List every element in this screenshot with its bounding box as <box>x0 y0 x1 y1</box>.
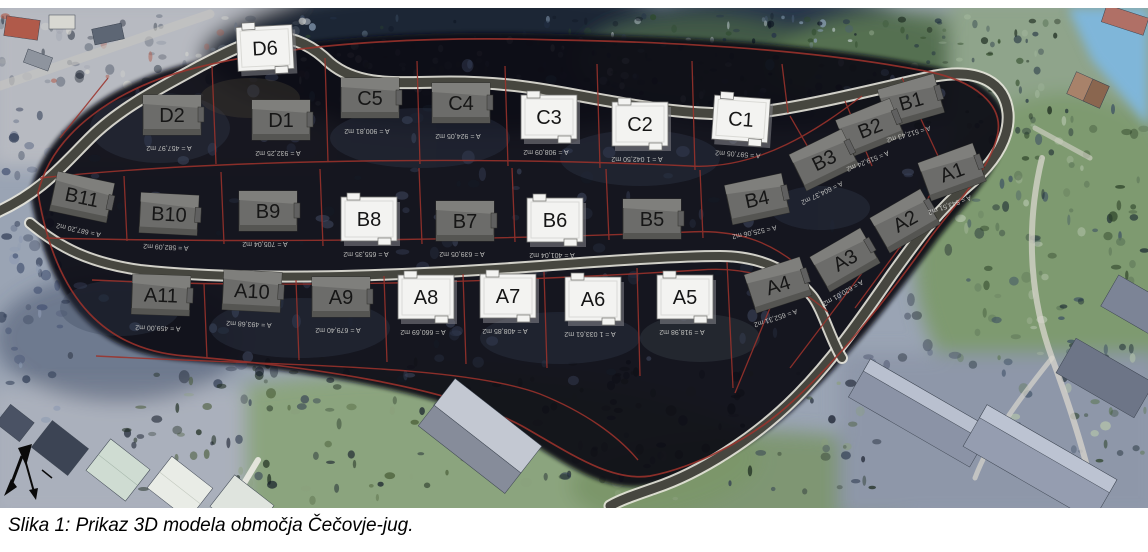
parcel-house-c5: C5 <box>341 78 402 118</box>
parcel-house-b6: B6 <box>527 194 586 247</box>
parcel-house-a9: A9 <box>312 277 373 317</box>
parcel-label-d2: D2 <box>159 105 185 127</box>
parcel-label-a7: A7 <box>496 286 520 308</box>
parcel-house-a10: A10 <box>222 270 285 313</box>
parcel-house-c4: C4 <box>432 83 493 123</box>
parcel-area-text-b9: A = 705,04 m2 <box>242 240 287 247</box>
parcel-area-text-a8: A = 660,69 m2 <box>400 328 445 335</box>
parcel-label-b7: B7 <box>453 211 477 233</box>
parcel-label-b5: B5 <box>640 209 664 231</box>
parcel-area-text-c5: A = 900,81 m2 <box>344 127 389 134</box>
figure-caption: Slika 1: Prikaz 3D modela območja Čečovj… <box>0 508 1148 538</box>
parcel-house-a7: A7 <box>480 270 539 323</box>
parcel-area-text-b7: A = 639,05 m2 <box>439 250 484 257</box>
parcel-house-b10: B10 <box>139 193 202 236</box>
parcel-label-c4: C4 <box>448 93 474 115</box>
parcel-house-d6: D6 <box>236 20 298 76</box>
parcel-label-d1: D1 <box>268 110 294 132</box>
parcel-house-a5: A5 <box>657 271 716 324</box>
parcel-house-b8: B8 <box>341 193 400 246</box>
parcel-area-text-c2: A = 1 042,50 m2 <box>611 155 662 162</box>
parcel-area-text-c4: A = 924,05 m2 <box>435 132 480 139</box>
parcel-label-b10: B10 <box>151 203 188 227</box>
parcel-house-a11: A11 <box>131 274 193 316</box>
parcel-area-text-b6: A = 401,04 m2 <box>529 251 574 258</box>
parcel-label-c5: C5 <box>357 88 383 110</box>
parcel-house-d2: D2 <box>143 95 204 135</box>
parcel-house-d1: D1 <box>252 100 313 140</box>
figure-3d-model: D6D2D1C5C4C3C2C1B1B2B3A1A2B11B10B9B8B7B6… <box>0 8 1148 538</box>
parcel-area-text-a7: A = 408,85 m2 <box>482 327 527 334</box>
parcel-label-a11: A11 <box>144 284 179 307</box>
parcel-label-c2: C2 <box>627 114 653 136</box>
parcel-label-c3: C3 <box>536 107 562 129</box>
aerial-photo: D6D2D1C5C4C3C2C1B1B2B3A1A2B11B10B9B8B7B6… <box>0 8 1148 508</box>
parcel-area-text-a5: A = 918,98 m2 <box>659 328 704 335</box>
parcel-house-a8: A8 <box>398 271 457 324</box>
parcel-area-text-d2: A = 457,97 m2 <box>146 144 191 151</box>
parcel-label-b6: B6 <box>543 210 567 232</box>
parcel-area-text-c3: A = 908,09 m2 <box>523 148 568 155</box>
parcel-label-a9: A9 <box>329 287 353 309</box>
parcel-label-c1: C1 <box>727 108 754 132</box>
parcel-house-c3: C3 <box>521 91 580 144</box>
parcel-label-b9: B9 <box>256 201 280 223</box>
parcel-house-c1: C1 <box>711 91 774 148</box>
parcel-area-text-d1: A = 932,25 m2 <box>255 149 300 156</box>
parcel-house-b7: B7 <box>436 201 497 241</box>
parcel-area-text-b8: A = 655,35 m2 <box>343 250 388 257</box>
parcel-label-a8: A8 <box>414 287 438 309</box>
parcel-label-a10: A10 <box>234 280 271 304</box>
parcel-house-c2: C2 <box>612 98 671 151</box>
parcel-area-text-a6: A = 1 033,61 m2 <box>564 330 615 337</box>
parcel-label-d6: D6 <box>252 37 279 60</box>
parcel-house-b9: B9 <box>239 191 300 231</box>
parcel-area-text-a9: A = 679,40 m2 <box>315 326 360 333</box>
parcel-label-a6: A6 <box>581 289 605 311</box>
parcel-house-b5: B5 <box>623 199 684 239</box>
parcel-house-a6: A6 <box>565 273 624 326</box>
parcel-label-b8: B8 <box>357 209 381 231</box>
parcel-label-a5: A5 <box>673 287 697 309</box>
